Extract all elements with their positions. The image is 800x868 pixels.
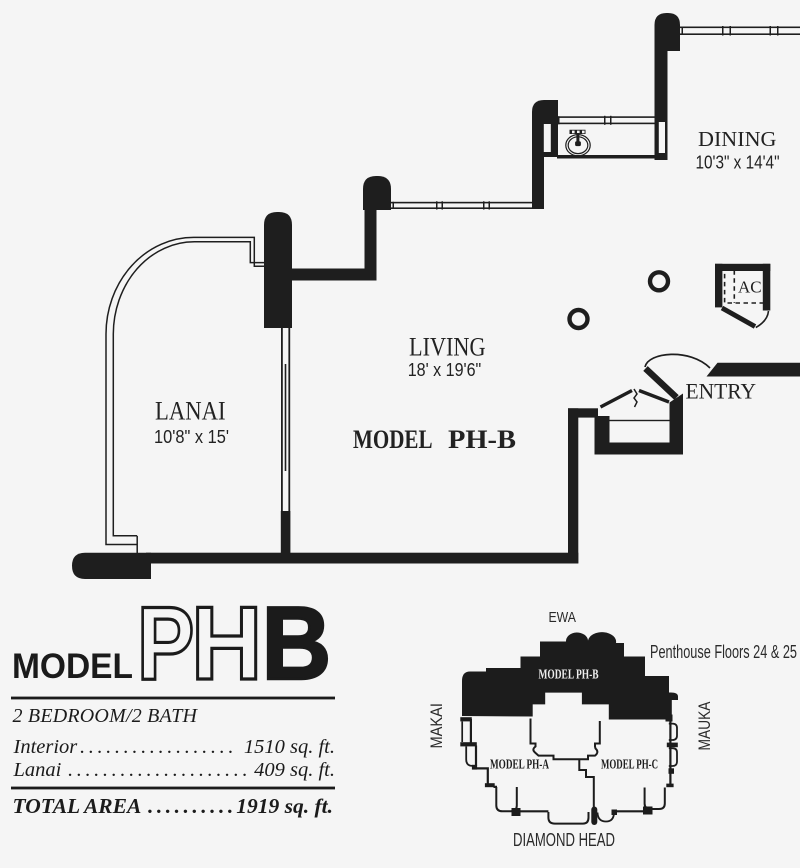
svg-text:Penthouse Floors 24 & 25: Penthouse Floors 24 & 25	[650, 642, 797, 662]
svg-text:H: H	[191, 586, 262, 702]
svg-text:ENTRY: ENTRY	[686, 379, 757, 404]
svg-text:TOTAL AREA: TOTAL AREA	[13, 794, 142, 818]
svg-text:PH-B: PH-B	[448, 425, 516, 454]
svg-text:2 BEDROOM/2 BATH: 2 BEDROOM/2 BATH	[13, 705, 199, 727]
svg-text:10'8" x 15': 10'8" x 15'	[154, 427, 229, 447]
svg-text:MODEL: MODEL	[353, 425, 433, 454]
svg-text:10'3" x 14'4": 10'3" x 14'4"	[696, 153, 780, 173]
svg-text:MAUKA: MAUKA	[696, 702, 714, 751]
svg-text:AC: AC	[738, 278, 762, 297]
svg-text:P: P	[137, 585, 195, 701]
svg-text:Interior: Interior	[13, 736, 79, 758]
svg-text:1919 sq. ft.: 1919 sq. ft.	[236, 794, 333, 818]
svg-text:LANAI: LANAI	[155, 397, 226, 426]
svg-text:1510 sq. ft.: 1510 sq. ft.	[244, 736, 335, 758]
svg-text:409 sq. ft.: 409 sq. ft.	[254, 759, 335, 781]
svg-text:DINING: DINING	[698, 127, 777, 151]
svg-text:LIVING: LIVING	[409, 333, 486, 362]
svg-text:MODEL: MODEL	[12, 647, 133, 686]
svg-text:MAKAI: MAKAI	[428, 703, 446, 749]
svg-text:..........: ..........	[148, 794, 237, 818]
svg-text:18' x 19'6": 18' x 19'6"	[408, 360, 482, 380]
svg-text:.....................: .....................	[68, 759, 251, 781]
svg-text:MODEL PH-C: MODEL PH-C	[601, 757, 658, 772]
svg-text:B: B	[262, 586, 332, 702]
svg-text:..................: ..................	[80, 736, 237, 758]
svg-text:DIAMOND HEAD: DIAMOND HEAD	[513, 829, 615, 850]
svg-text:MODEL PH-A: MODEL PH-A	[490, 757, 549, 772]
svg-text:MODEL PH-B: MODEL PH-B	[539, 668, 599, 683]
svg-text:Lanai: Lanai	[13, 759, 62, 781]
svg-text:EWA: EWA	[549, 610, 577, 626]
